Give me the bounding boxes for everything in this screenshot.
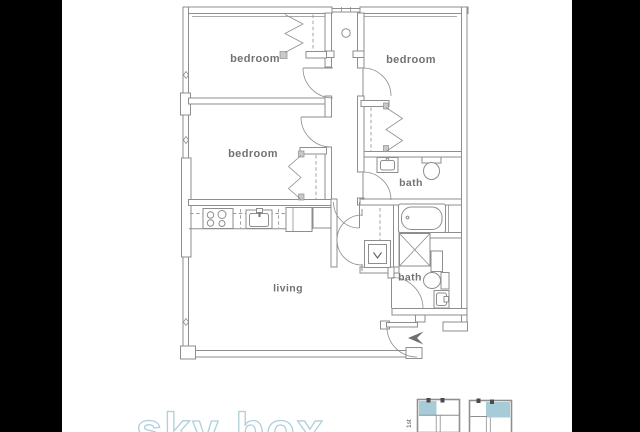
room-label-living: living — [273, 283, 303, 295]
pantry-cabinet-icon — [313, 208, 331, 229]
closet-double-doors — [337, 209, 362, 271]
toilet-icon — [424, 273, 450, 290]
bifold-door-icon — [289, 156, 302, 200]
building-key-plan-right — [470, 399, 512, 432]
room-label-bath-upper: bath — [399, 177, 423, 189]
door-jambs — [280, 52, 389, 201]
fridge-icon — [286, 208, 312, 232]
utility-circle-icon — [342, 29, 350, 37]
linen-cabinet-icon — [431, 251, 443, 272]
door-middle-bedroom — [301, 117, 331, 147]
toilet-icon — [422, 157, 441, 180]
room-label-bedroom-top-right: bedroom — [386, 54, 436, 66]
bathtub-icon — [399, 204, 449, 233]
lower-bath-fixtures — [365, 204, 450, 308]
room-label-bedroom-middle: bedroom — [228, 148, 278, 160]
entry-arrow-icon — [408, 332, 424, 345]
unit-highlight — [419, 401, 437, 415]
kitchen-sink-icon — [246, 209, 272, 229]
shower-x-icon — [400, 234, 431, 267]
room-label-bath-lower: bath — [398, 272, 422, 284]
bath-sink-icon — [377, 158, 398, 173]
door-upper-bath — [363, 172, 391, 200]
screenshot-root: bedroom bedroom bedroom bath bath living… — [0, 0, 640, 432]
door-top-left-bedroom — [303, 68, 333, 98]
bifold-door-icon — [386, 108, 403, 152]
room-label-bedroom-top-left: bedroom — [230, 53, 280, 65]
floor-plan-image: bedroom bedroom bedroom bath bath living… — [0, 0, 640, 432]
stove-icon — [203, 209, 233, 229]
key-plan-thumbnails: 1st — [406, 398, 512, 432]
bifold-door-icon — [285, 15, 303, 53]
door-top-right-bedroom — [363, 68, 391, 96]
floor-indicator-label: 1st — [406, 419, 413, 428]
skybox-logo: sky box — [136, 403, 325, 432]
building-key-plan-left — [418, 398, 460, 432]
unit-highlight — [486, 402, 510, 418]
water-heater-icon — [365, 241, 391, 268]
bath-sink-icon — [434, 291, 449, 309]
kitchen — [189, 208, 331, 232]
